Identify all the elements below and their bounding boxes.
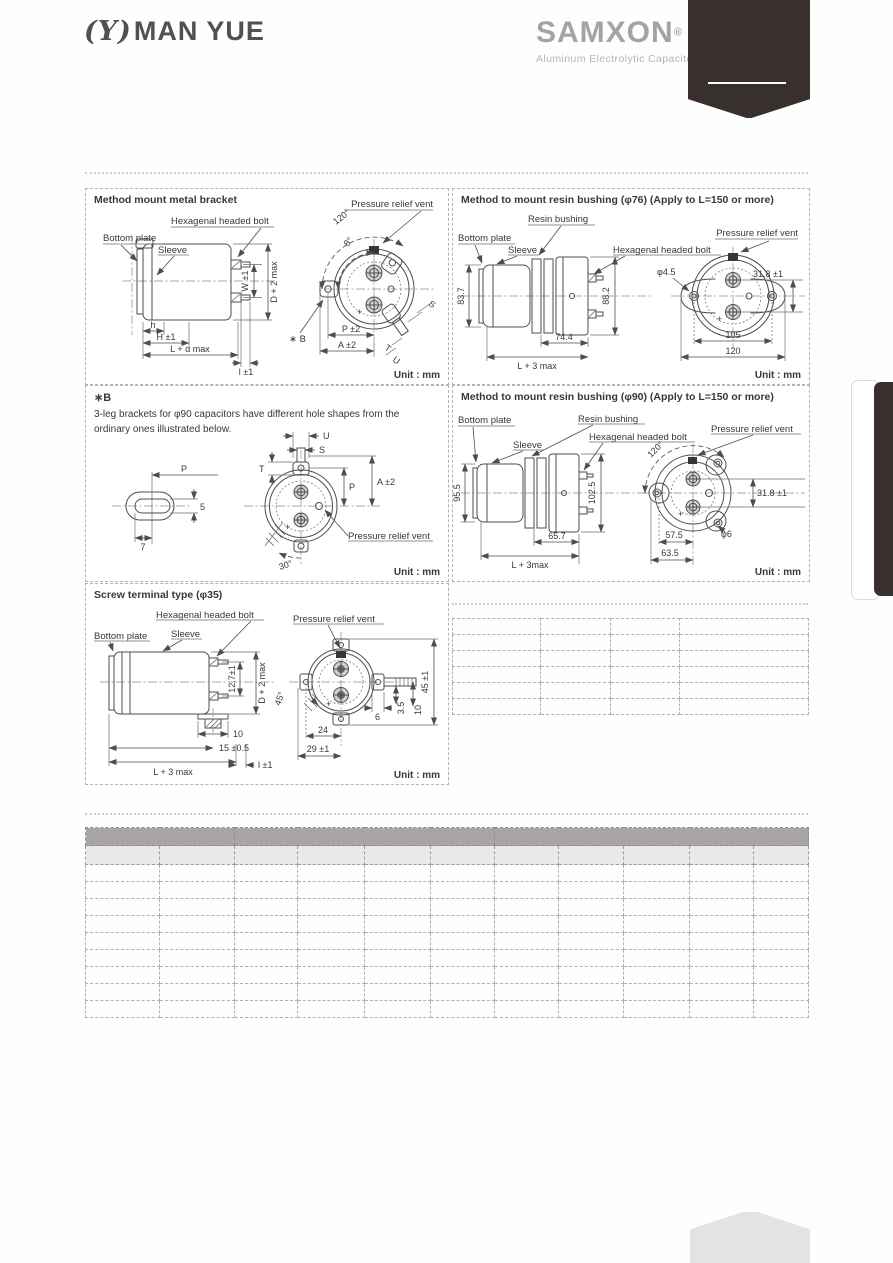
polarity-plus: + [326,699,331,709]
sub-header-cell [559,846,624,865]
table-cell [559,865,624,882]
hex-bolt-label: Hexagenal headed bolt [589,432,687,443]
dim-len: L + α max [170,344,210,354]
table-cell [754,916,809,933]
table-cell [235,916,298,933]
unit-label: Unit : mm [394,370,440,381]
table-cell [86,933,160,950]
table-cell [453,635,541,651]
dim-s: S [319,445,325,455]
table-cell [160,899,235,916]
sub-header-cell [235,846,298,865]
table-cell [624,882,690,899]
manyue-logo-text: MAN YUE [134,16,265,46]
table-cell [365,865,431,882]
table-cell [365,899,431,916]
resin-bushing-label: Resin bushing [578,414,638,425]
table-cell [235,1001,298,1018]
sub-header-cell [624,846,690,865]
table-cell [680,699,809,715]
table-cell [690,950,754,967]
dim-29: 29 ±1 [307,744,329,754]
note-b-line2: ordinary ones illustrated below. [94,424,231,435]
table-cell [690,916,754,933]
sleeve-label: Sleeve [158,245,187,256]
table-cell [611,635,680,651]
dim-t: T [383,342,394,354]
table-cell [86,967,160,984]
table-cell [611,619,680,635]
table-cell [754,984,809,1001]
table-cell [680,651,809,667]
dim-body-height: 95.5 [453,484,462,502]
unit-label: Unit : mm [394,770,440,781]
table-cell [690,882,754,899]
table-cell [86,984,160,1001]
table-cell [298,916,365,933]
dim-flange-width: 120 [725,346,740,356]
dim-flange-height: 88.2 [601,287,611,305]
table-cell [611,667,680,683]
table-cell [160,865,235,882]
table-cell [86,950,160,967]
table-cell [86,916,160,933]
table-cell [453,651,541,667]
panel-title: Method mount metal bracket [94,194,237,206]
metal-bracket-diagram: W ±1 D + 2 max h H ±1 L + α max l ±1 [86,189,448,384]
table-cell [235,882,298,899]
table-cell [235,865,298,882]
table-cell [365,933,431,950]
dim-s: S [427,298,438,310]
dim-terminal-pitch: 31.8 ±1 [757,488,787,498]
ribbon-divider-line [708,82,786,84]
front-view-drawing: + 120° 31.8 ±1 φ6 57.5 63.5 [641,439,805,568]
table-cell [298,865,365,882]
table-cell [624,865,690,882]
separator-right-column [452,603,808,605]
dim-p: P [349,482,355,492]
dim-12-7: 12.7±1 [227,665,237,692]
table-cell [611,699,680,715]
dim-57-5: 57.5 [665,530,683,540]
group-header-cell [495,828,809,846]
table-cell [431,882,495,899]
table-cell [431,899,495,916]
table-cell [365,916,431,933]
unit-label: Unit : mm [755,567,801,578]
sub-header-cell [86,846,160,865]
dim-6: 6 [375,712,380,722]
callout-labels: Bottom plate Resin bushing Hexagenal hea… [458,414,801,470]
table-cell [559,984,624,1001]
panel-resin-bushing-90: Method to mount resin bushing (φ90) (App… [452,385,810,582]
table-cell [431,933,495,950]
table-cell [453,619,541,635]
registered-mark: ® [674,27,682,39]
table-cell [365,1001,431,1018]
table-cell [160,1001,235,1018]
table-cell [298,1001,365,1018]
table-cell [160,950,235,967]
table-cell [298,950,365,967]
bottom-plate-label: Bottom plate [458,415,511,426]
resin-bushing-90-diagram: 95.5 102.5 65.7 L + 3max [453,386,809,581]
table-cell [624,933,690,950]
table-cell [495,865,559,882]
front-view-drawing: + 120° θ° Pressure relief vent ∗ B P ±2 … [289,199,438,366]
table-cell [495,984,559,1001]
dim-l: l ±1 [258,760,272,770]
dim-w: W ±1 [240,271,250,292]
table-cell [624,967,690,984]
polarity-plus: + [357,307,362,317]
table-cell [235,967,298,984]
resin-bushing-76-diagram: 83.7 88.2 74.4 L + 3 max [453,189,809,384]
table-cell [431,984,495,1001]
table-cell [559,933,624,950]
table-cell [86,882,160,899]
polarity-plus: + [678,509,683,519]
dim-24: 24 [318,725,328,735]
table-cell [298,967,365,984]
dim-length: L + 3 max [517,361,557,371]
ref-b-label: ∗ B [289,334,306,345]
bottom-plate-label: Bottom plate [458,233,511,244]
table-cell [235,950,298,967]
dim-length: L + 3 max [153,767,193,777]
hex-bolt-label: Hexagenal headed bolt [156,610,254,621]
table-cell [495,950,559,967]
dim-hole: φ6 [721,529,732,539]
table-cell [365,967,431,984]
table-cell [541,635,611,651]
table-cell [690,933,754,950]
table-cell [495,967,559,984]
table-cell [541,683,611,699]
table-cell [624,899,690,916]
table-cell [86,899,160,916]
table-cell [495,882,559,899]
table-cell [365,984,431,1001]
dim-d: D + 2 max [257,662,267,704]
table-cell [754,865,809,882]
table-cell [754,933,809,950]
table-cell [431,865,495,882]
table-cell [160,933,235,950]
dim-10b: 10 [413,705,423,715]
table-cell [754,967,809,984]
table-cell [754,950,809,967]
panel-title: Method to mount resin bushing (φ90) (App… [461,391,774,403]
table-cell [559,916,624,933]
samxon-logo: SAMXON® Aluminum Electrolytic Capacitors [536,22,702,65]
table-cell [495,933,559,950]
front-view-drawing: + 45° 45 ±1 6 3.5 10 [272,632,438,760]
side-view-drawing: W ±1 D + 2 max h H ±1 L + α max l ±1 [122,235,279,377]
dim-a: A ±2 [377,477,395,487]
table-cell [431,950,495,967]
table-cell [453,667,541,683]
dim-theta: θ° [342,235,355,248]
table-cell [754,1001,809,1018]
table-cell [541,651,611,667]
side-tab [874,382,893,596]
datasheet-page: (Υ)MAN YUE SAMXON® Aluminum Electrolytic… [0,0,893,1263]
hex-bolt-label: Hexagenal headed bolt [613,245,711,256]
table-cell [559,882,624,899]
sleeve-label: Sleeve [513,440,542,451]
dim-3-5: 3.5 [396,702,406,715]
sub-header-cell [160,846,235,865]
table-cell [541,667,611,683]
dim-7: 7 [140,542,145,552]
bottom-corner-mark [690,1212,810,1263]
dim-30deg: 30° [278,558,294,572]
dim-u: U [391,354,402,366]
small-spec-table [452,618,808,715]
samxon-tagline: Aluminum Electrolytic Capacitors [536,53,702,65]
table-cell [298,882,365,899]
table-cell [624,1001,690,1018]
bottom-plate-label: Bottom plate [103,233,156,244]
dim-h: H ±1 [157,332,176,342]
table-cell [235,933,298,950]
table-cell [86,1001,160,1018]
polarity-plus: + [717,314,722,324]
table-cell [298,984,365,1001]
table-cell [235,899,298,916]
dim-hole: φ4.5 [657,267,675,277]
table-cell [453,683,541,699]
vent-label: Pressure relief vent [351,199,433,210]
bottom-plate-label: Bottom plate [94,631,147,642]
note-b-ref: ∗B [94,391,442,404]
sleeve-label: Sleeve [171,629,200,640]
table-cell [611,683,680,699]
panel-screw-terminal-35: Screw terminal type (φ35) Unit : mm [85,583,449,785]
dim-bushing: 65.7 [548,531,566,541]
group-header-cell [86,828,235,846]
table-cell [160,882,235,899]
table-cell [680,683,809,699]
sleeve-label: Sleeve [508,245,537,256]
table-cell [431,1001,495,1018]
table-cell [754,882,809,899]
large-spec-table [85,827,808,1018]
table-cell [754,899,809,916]
table-cell [680,667,809,683]
corner-ribbon [688,0,810,118]
table-cell [559,967,624,984]
table-cell [365,950,431,967]
note-b-line1: 3-leg brackets for φ90 capacitors have d… [94,409,399,420]
panel-title: Method to mount resin bushing (φ76) (App… [461,194,774,206]
table-cell [559,899,624,916]
vent-label: Pressure relief vent [711,424,793,435]
sub-header-cell [690,846,754,865]
table-cell [298,899,365,916]
dim-h-small: h [150,320,155,330]
dim-flange-height: 102.5 [587,482,597,505]
table-cell [160,984,235,1001]
resin-bushing-label: Resin bushing [528,214,588,225]
front-view-drawing: + 30° U S T [244,431,433,572]
table-cell [559,1001,624,1018]
unit-label: Unit : mm [755,370,801,381]
dim-length: L + 3max [512,560,549,570]
table-cell [365,882,431,899]
dim-a: A ±2 [338,340,356,350]
table-cell [680,619,809,635]
dim-body-height: 83.7 [456,287,466,305]
table-cell [495,1001,559,1018]
table-cell [690,899,754,916]
sub-header-cell [754,846,809,865]
table-cell [611,651,680,667]
samxon-logo-text: SAMXON [536,16,674,49]
table-cell [160,916,235,933]
table-cell [690,984,754,1001]
vent-label: Pressure relief vent [293,614,375,625]
manyue-logo-mark: (Υ) [84,16,132,47]
side-view-drawing: 95.5 102.5 65.7 L + 3max [453,454,645,570]
panel-title: Screw terminal type (φ35) [94,589,222,601]
hex-bolt-label: Hexagenal headed bolt [171,216,269,227]
table-cell [495,899,559,916]
note-b-text: ∗B 3-leg brackets for φ90 capacitors hav… [94,391,442,437]
dim-p: P ±2 [342,324,360,334]
table-cell [680,635,809,651]
separator-top [85,172,808,174]
side-view-drawing: 83.7 88.2 74.4 L + 3 max [456,257,653,371]
table-cell [495,916,559,933]
table-cell [559,950,624,967]
dim-l: l ±1 [239,367,253,377]
unit-label: Unit : mm [394,567,440,578]
sub-header-cell [495,846,559,865]
panel-note-b: ∗B 3-leg brackets for φ90 capacitors hav… [85,385,449,582]
dim-bushing: 74.4 [555,332,573,342]
table-cell [541,699,611,715]
sub-header-cell [298,846,365,865]
polarity-plus: + [285,522,290,532]
dim-45deg: 45° [272,690,286,707]
dim-5: 5 [200,502,205,512]
vent-label: Pressure relief vent [348,531,430,542]
side-view-drawing: 12.7±1 D + 2 max 10 15 ±0.5 L + 3 max l … [100,652,276,777]
dim-15: 15 ±0.5 [219,743,249,753]
vent-label: Pressure relief vent [716,228,798,239]
table-cell [453,699,541,715]
separator-above-table [85,813,808,815]
callout-labels: Bottom plate Sleeve Hexagenal headed bol… [103,216,274,275]
dim-terminal-pitch: 31.8 ±1 [753,269,783,279]
dim-10: 10 [233,729,243,739]
dim-hole-pitch: 105 [725,330,740,340]
table-cell [431,916,495,933]
hole-shape-drawing: P 5 7 [112,464,218,552]
sub-header-cell [431,846,495,865]
panel-metal-bracket: Method mount metal bracket Unit : mm [85,188,449,385]
table-cell [624,916,690,933]
panel-resin-bushing-76: Method to mount resin bushing (φ76) (App… [452,188,810,385]
sub-header-cell [365,846,431,865]
dim-p-left: P [181,464,187,474]
group-header-cell [235,828,495,846]
table-cell [160,967,235,984]
table-cell [690,1001,754,1018]
table-cell [298,933,365,950]
table-cell [541,619,611,635]
dim-63-5: 63.5 [661,548,679,558]
manyue-logo: (Υ)MAN YUE [84,16,265,47]
table-cell [624,950,690,967]
table-cell [86,865,160,882]
dim-d: D + 2 max [269,261,279,303]
table-cell [431,967,495,984]
table-cell [235,984,298,1001]
table-cell [690,967,754,984]
screw-terminal-diagram: 12.7±1 D + 2 max 10 15 ±0.5 L + 3 max l … [86,584,448,784]
dim-t: T [259,464,265,474]
table-cell [690,865,754,882]
dim-45: 45 ±1 [420,671,430,693]
table-cell [624,984,690,1001]
